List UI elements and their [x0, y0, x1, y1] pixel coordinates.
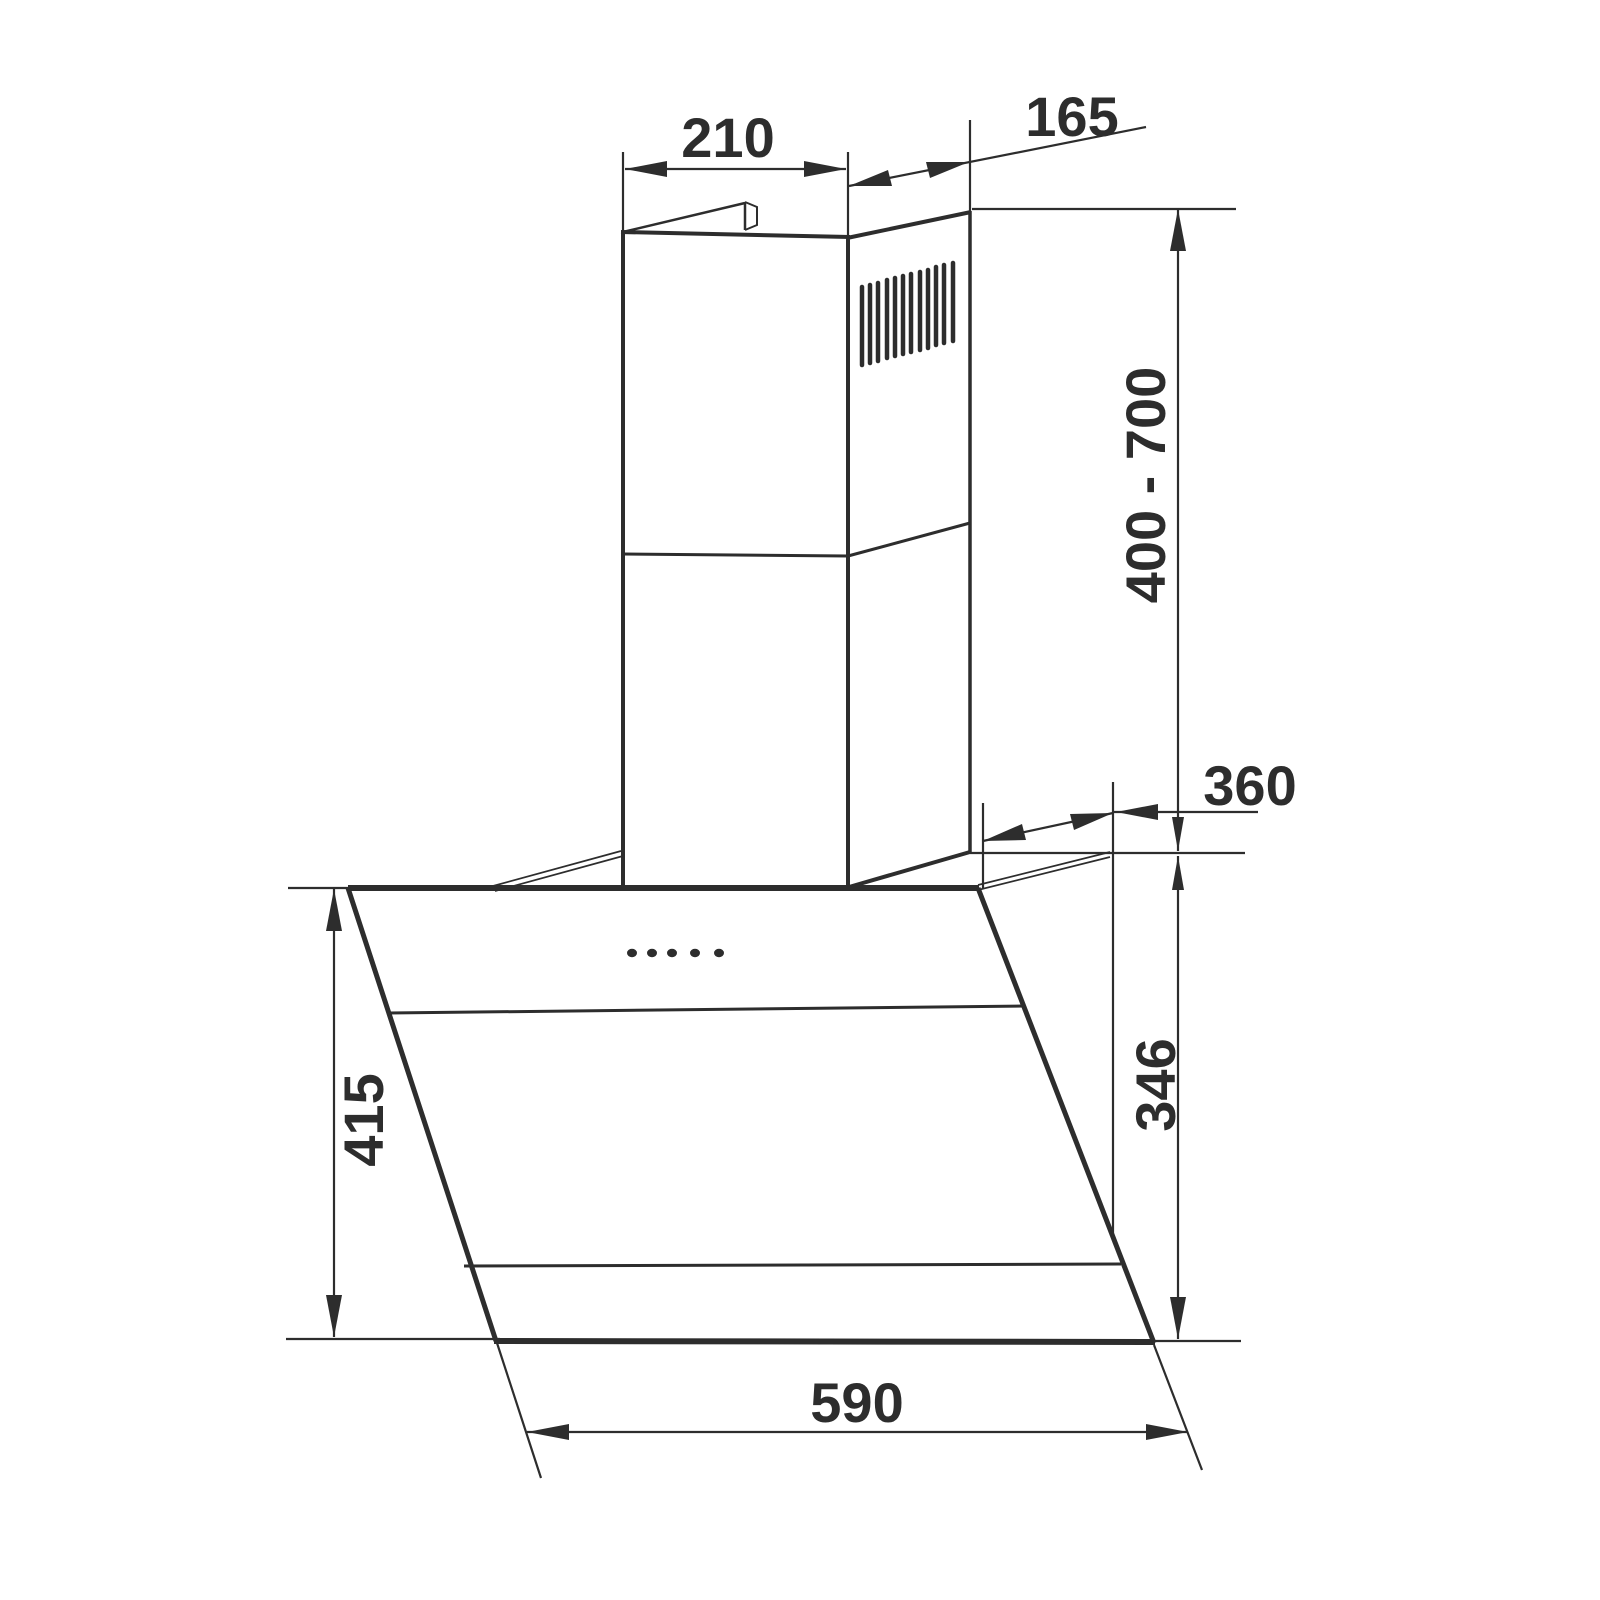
dim-label-hood-width: 590 [810, 1371, 903, 1434]
chimney-seam-front [623, 554, 848, 556]
dim-label-chimney-height: 400 - 700 [1114, 367, 1177, 604]
dim-label-chimney-width: 210 [681, 106, 774, 169]
dim-label-front-height: 415 [332, 1073, 395, 1166]
drawing-background [0, 0, 1600, 1600]
dim-label-top-depth: 360 [1203, 754, 1296, 817]
dim-label-chimney-depth: 165 [1025, 85, 1118, 148]
hood-dimension-drawing-page: 210 165 400 - 700 360 346 415 590 [0, 0, 1600, 1600]
hood-technical-drawing: 210 165 400 - 700 360 346 415 590 [0, 0, 1600, 1600]
dim-label-back-height: 346 [1124, 1038, 1187, 1131]
